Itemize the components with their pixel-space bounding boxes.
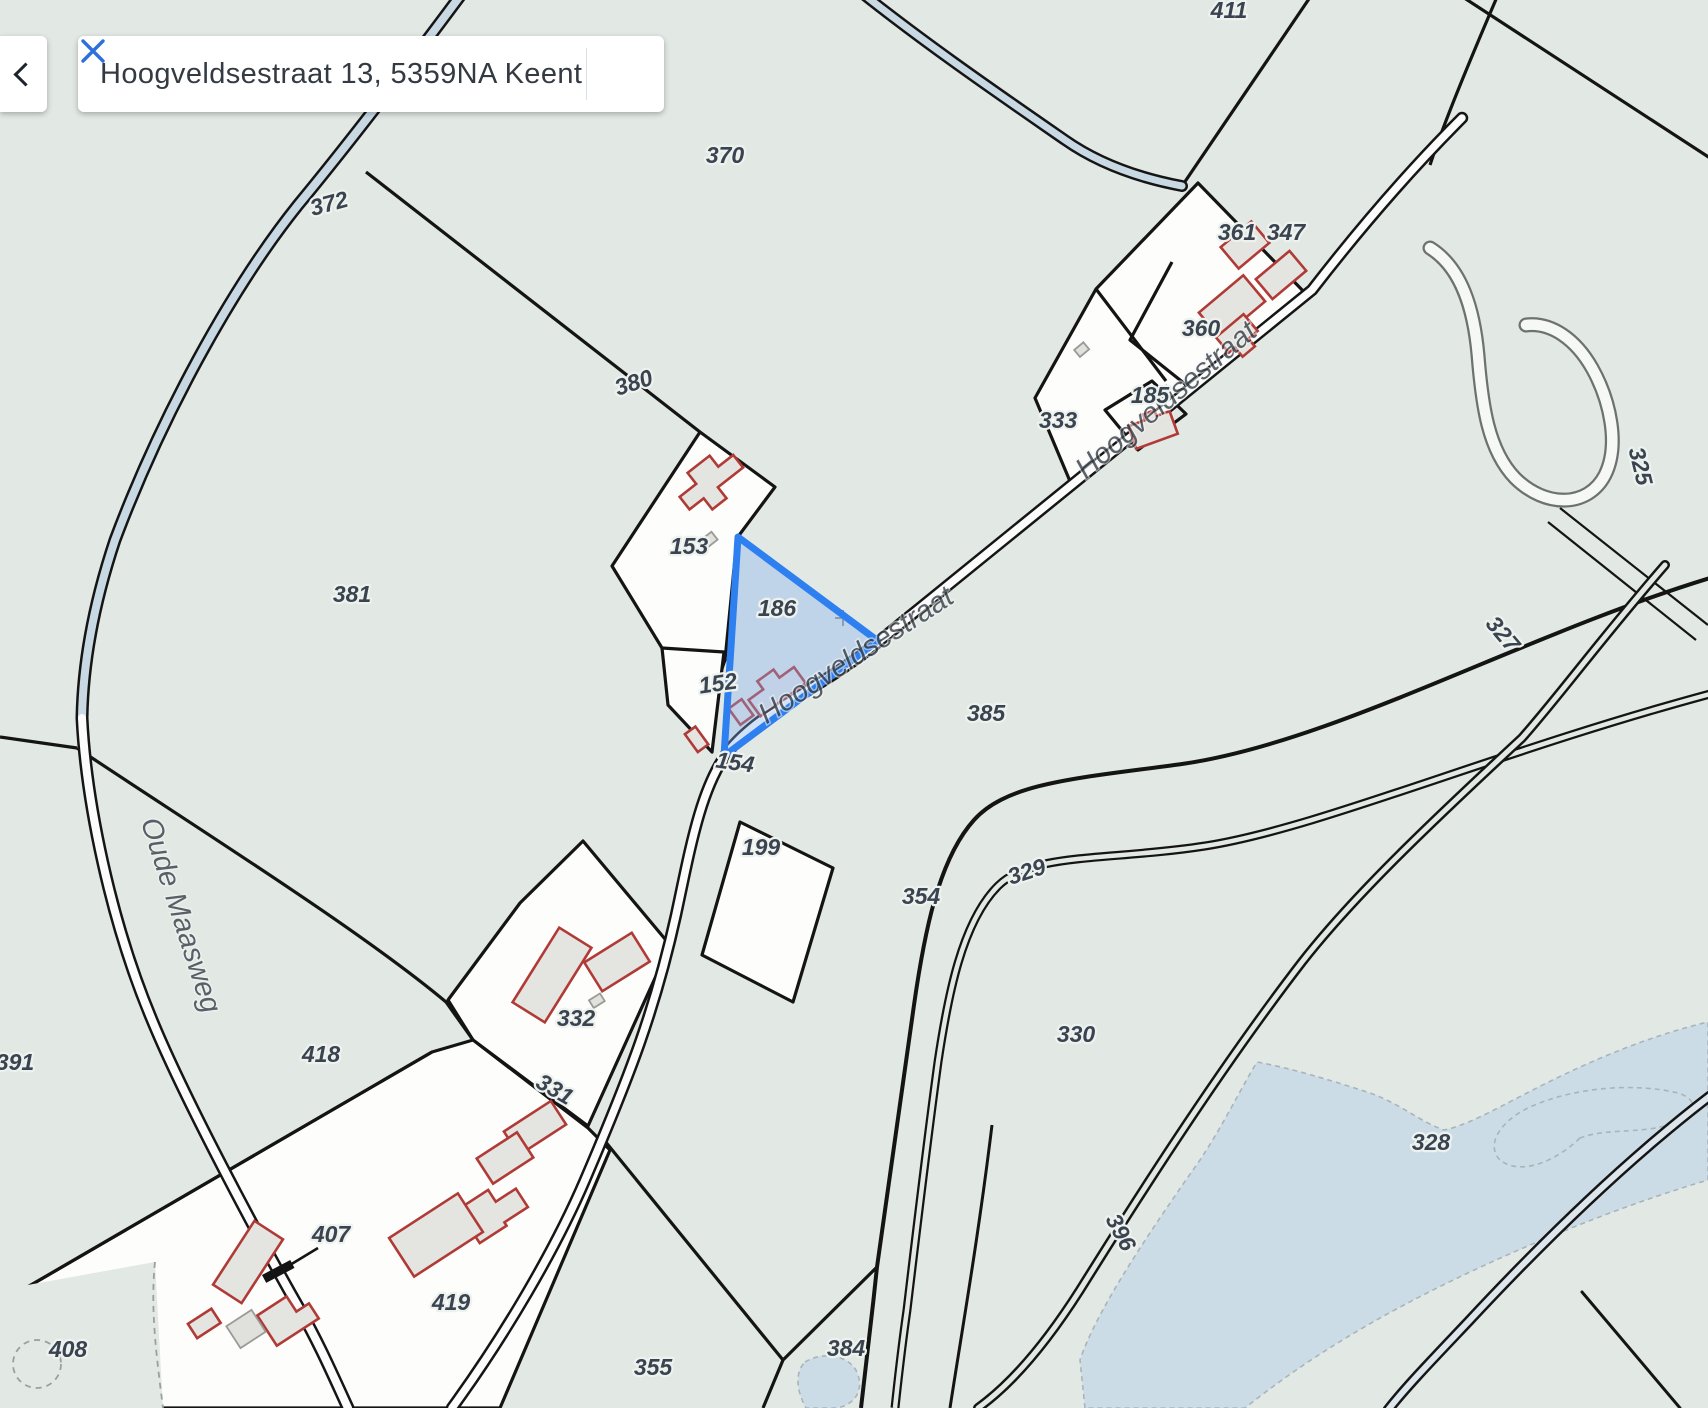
parcel-label: 355 bbox=[634, 1354, 674, 1380]
parcel-label: 328 bbox=[1412, 1129, 1451, 1155]
parcel-label: 186 bbox=[758, 595, 797, 621]
parcel-label: 347 bbox=[1267, 219, 1307, 245]
parcel-label: 332 bbox=[557, 1005, 596, 1031]
parcel-label: 408 bbox=[48, 1336, 88, 1362]
parcel-label: 381 bbox=[333, 581, 371, 607]
close-icon bbox=[78, 36, 108, 66]
back-button[interactable] bbox=[0, 36, 47, 112]
parcel-label: 370 bbox=[706, 142, 745, 168]
parcel-label: 333 bbox=[1039, 407, 1078, 433]
parcel-label: 407 bbox=[311, 1221, 352, 1247]
parcel-label: 152 bbox=[697, 668, 739, 699]
clear-search-button[interactable] bbox=[587, 36, 664, 112]
parcel-label: 354 bbox=[902, 883, 941, 909]
parcel-label: 185 bbox=[1131, 382, 1171, 408]
chevron-left-icon bbox=[13, 62, 37, 86]
parcel-label: 154 bbox=[714, 747, 756, 778]
parcel-label: 418 bbox=[301, 1041, 341, 1067]
parcel-label: 361 bbox=[1218, 219, 1256, 245]
search-input[interactable]: Hoogveldsestraat 13, 5359NA Keent bbox=[78, 58, 586, 91]
map-canvas[interactable]: HoogveldsestraatHoogveldsestraatOude Maa… bbox=[0, 0, 1708, 1408]
parcel-label: 360 bbox=[1182, 315, 1221, 341]
map-viewer: HoogveldsestraatHoogveldsestraatOude Maa… bbox=[0, 0, 1708, 1408]
parcel-label: 153 bbox=[670, 533, 709, 559]
parcel-label: 411 bbox=[1210, 0, 1248, 23]
parcel-label: 391 bbox=[0, 1049, 34, 1075]
parcel-label: 384 bbox=[827, 1335, 866, 1361]
pond bbox=[798, 1356, 860, 1408]
parcel-label: 199 bbox=[742, 834, 781, 860]
search-bar: Hoogveldsestraat 13, 5359NA Keent bbox=[78, 36, 664, 112]
parcel-label: 419 bbox=[431, 1289, 471, 1315]
parcel-label: 385 bbox=[967, 700, 1007, 726]
parcel-label: 330 bbox=[1057, 1021, 1096, 1047]
